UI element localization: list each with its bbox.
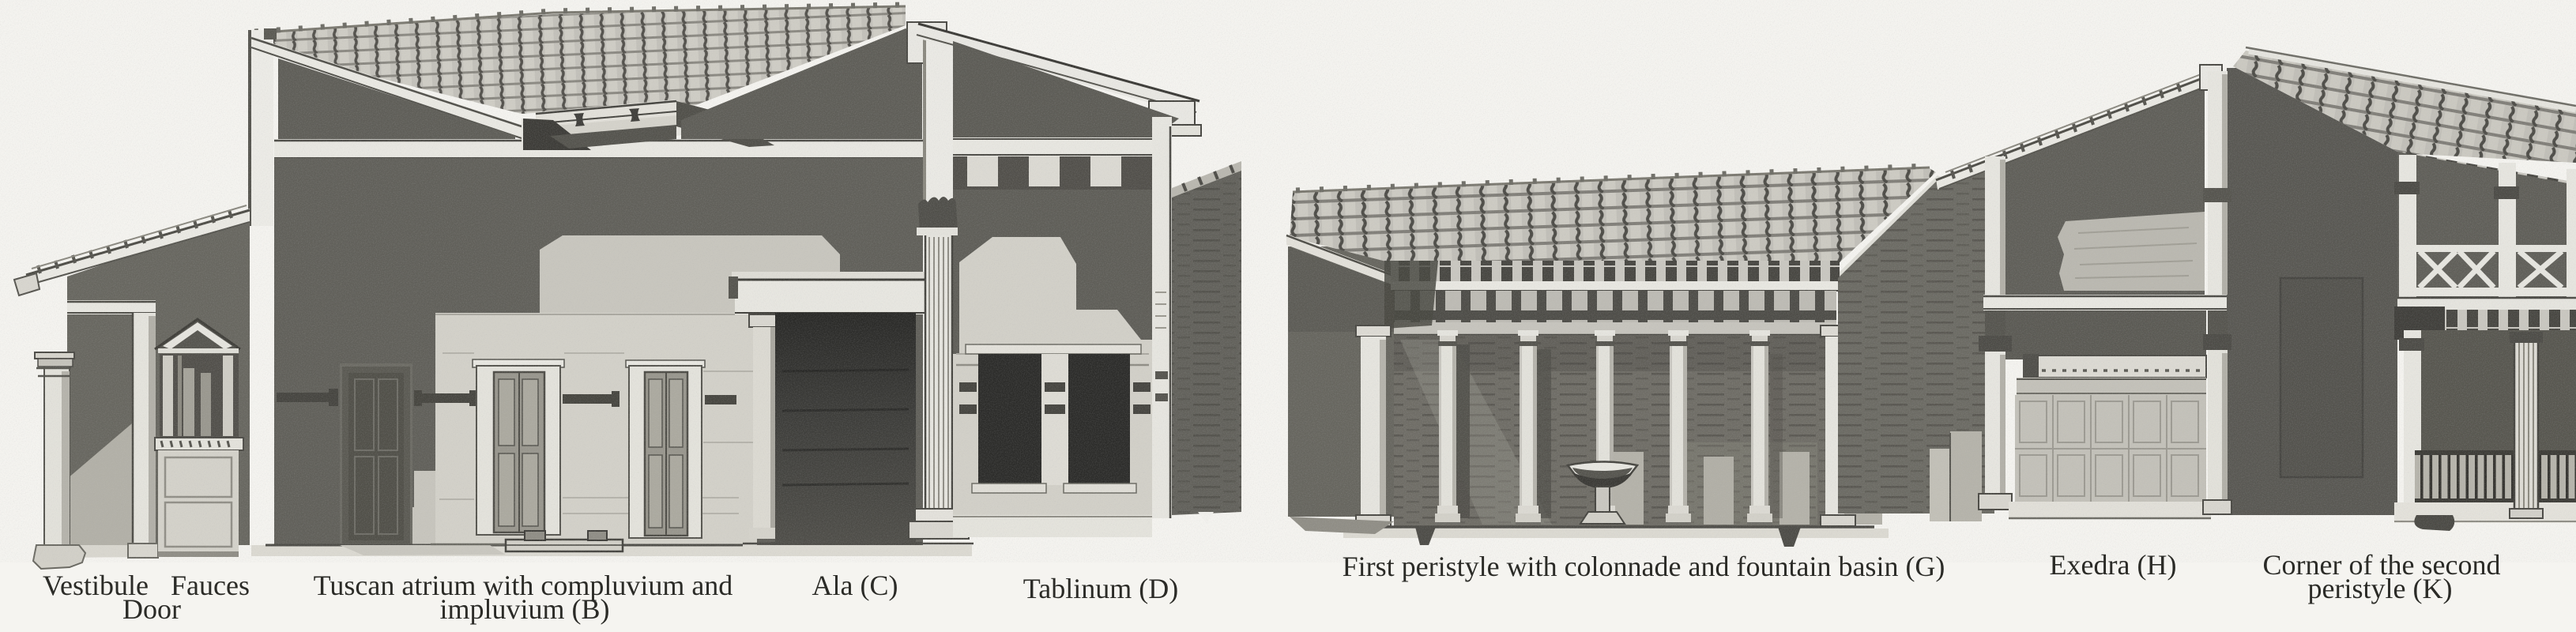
svg-text:Ala (C): Ala (C) (812, 570, 898, 601)
svg-text:First peristyle with colonnade: First peristyle with colonnade and fount… (1343, 551, 1945, 582)
svg-text:Door: Door (122, 593, 181, 625)
svg-text:peristyle (K): peristyle (K) (2308, 573, 2453, 604)
svg-text:impluvium (B): impluvium (B) (440, 593, 610, 625)
svg-text:Exedra (H): Exedra (H) (2050, 549, 2177, 581)
svg-text:Tablinum (D): Tablinum (D) (1023, 573, 1178, 604)
svg-text:Fauces: Fauces (171, 570, 250, 601)
